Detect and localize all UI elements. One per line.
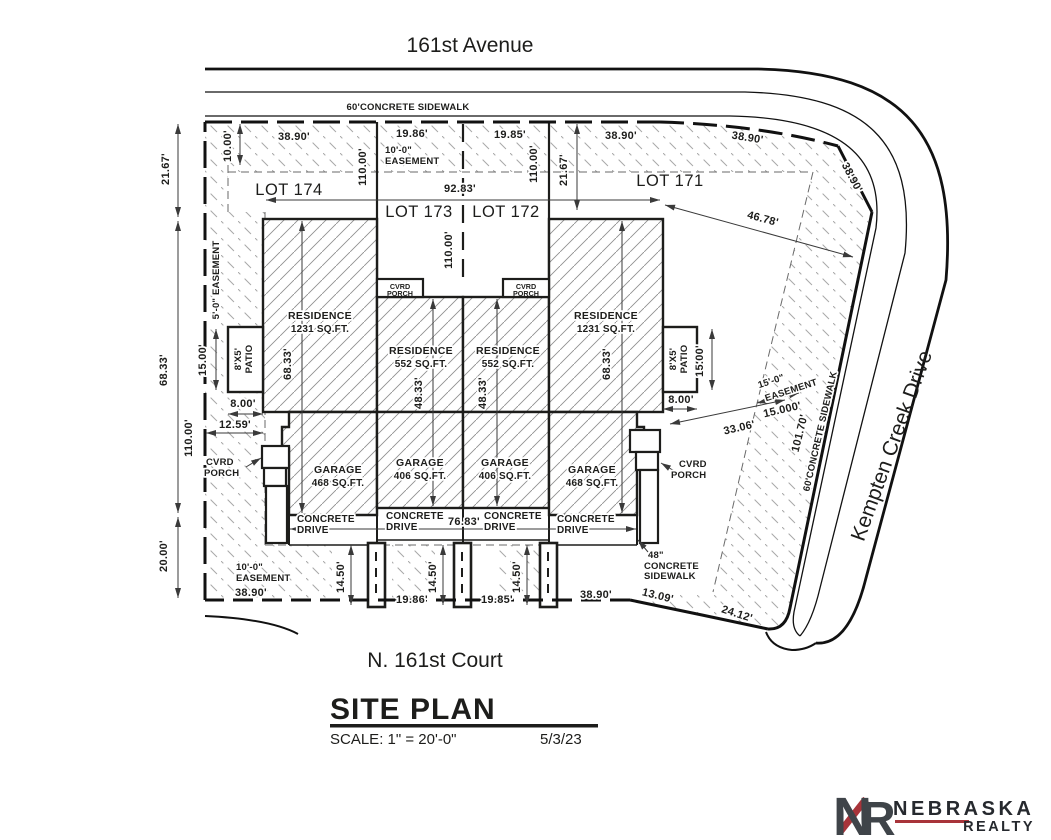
drive-172-label-2: DRIVE — [484, 522, 516, 533]
curb-bottom-right — [766, 632, 816, 650]
residence-171-sqft: 1231 SQ.FT. — [577, 324, 635, 335]
dim-14-50-b: 14.50' — [427, 561, 439, 593]
garage-173-label: GARAGE — [396, 457, 444, 469]
drive-174-label-2: DRIVE — [297, 525, 329, 536]
residence-173-label: RESIDENCE — [389, 345, 453, 357]
easement-bottom-label-2: EASEMENT — [236, 573, 290, 584]
residence-171-label: RESIDENCE — [574, 310, 638, 322]
porch-171-rear-label-1: CVRD — [679, 459, 707, 470]
patio-174-size-label: 8'X5' — [233, 348, 244, 370]
dim-38-90-bottom-right: 38.90' — [580, 589, 612, 601]
drive-172-label-1: CONCRETE — [484, 511, 542, 522]
dim-12-59: 12.59' — [219, 419, 251, 431]
dim-68-33-left: 68.33' — [158, 354, 170, 386]
curb-bottom-left — [205, 616, 298, 634]
dim-110-00-center: 110.00' — [443, 231, 455, 269]
porch-173-label-2: PORCH — [387, 289, 413, 298]
easement-left-label: 5'-0" EASEMENT — [211, 241, 222, 320]
dim-19-86-bottom: 19.86' — [396, 594, 428, 606]
sidewalk-label-top: 60'CONCRETE SIDEWALK — [347, 102, 470, 113]
porch-174-rear-label-2: PORCH — [204, 468, 239, 479]
logo-rule — [895, 820, 969, 823]
dim-38-90-top-right: 38.90' — [605, 130, 637, 142]
street-label-n-161st-court: N. 161st Court — [367, 649, 503, 672]
logo-tagline: REALTY — [963, 819, 1035, 835]
dim-110-00-left: 110.00' — [183, 419, 195, 457]
garage-173-sqft: 406 SQ.FT. — [394, 471, 447, 482]
dim-8-00-left: 8.00' — [230, 398, 256, 410]
residence-172-label: RESIDENCE — [476, 345, 540, 357]
patio-171-size-label: 8'X5' — [668, 348, 679, 370]
logo-name: NEBRASKA — [893, 798, 1034, 820]
garage-171-sqft: 468 SQ.FT. — [566, 478, 619, 489]
lot-173-label: LOT 173 — [385, 203, 452, 221]
logo-monogram-r: R — [861, 793, 896, 840]
dim-14-50-a: 14.50' — [335, 561, 347, 593]
residence-174-label: RESIDENCE — [288, 310, 352, 322]
dim-19-85-top: 19.85' — [494, 129, 526, 141]
easement-top-label-2: EASEMENT — [385, 156, 439, 167]
drawing-title: SITE PLAN — [330, 693, 496, 726]
title-underline — [330, 724, 598, 728]
drive-171-label-1: CONCRETE — [557, 514, 615, 525]
dim-15-00-right: 15.00' — [694, 345, 706, 377]
garage-172-label: GARAGE — [481, 457, 529, 469]
drive-171-label-2: DRIVE — [557, 525, 589, 536]
dim-8-00-right: 8.00' — [668, 394, 694, 406]
drawing-date: 5/3/23 — [540, 731, 582, 748]
patio-171-label: PATIO — [679, 345, 690, 374]
easement-bottom-label-1: 10'-0" — [236, 562, 263, 573]
easement-top-label-1: 10'-0" — [385, 145, 412, 156]
dim-14-50-c: 14.50' — [511, 561, 523, 593]
dim-110-00-lotline-1: 110.00' — [357, 148, 369, 186]
dim-68-33-res174: 68.33' — [282, 348, 294, 380]
dim-38-90-top-left: 38.90' — [278, 131, 310, 143]
lot-171-label: LOT 171 — [636, 172, 703, 190]
garage-171-label: GARAGE — [568, 464, 616, 476]
drive-174-label-1: CONCRETE — [297, 514, 355, 525]
street-label-kempten-creek-drive: Kempten Creek Drive — [847, 348, 937, 545]
street-label-161st-avenue: 161st Avenue — [407, 34, 534, 57]
drive-173-label-2: DRIVE — [386, 522, 418, 533]
dim-76-83: 76.83' — [448, 516, 480, 528]
sidewalk48-label-1: 48" — [648, 550, 664, 561]
dim-19-86-top: 19.86' — [396, 128, 428, 140]
garage-174-label: GARAGE — [314, 464, 362, 476]
garage-174-sqft: 468 SQ.FT. — [312, 478, 365, 489]
porch-172-label-2: PORCH — [513, 289, 539, 298]
drawing-scale: SCALE: 1" = 20'-0" — [330, 731, 457, 748]
site-plan-drawing: 161st Avenue N. 161st Court Kempten Cree… — [0, 0, 1051, 840]
porch-171-rear-label-2: PORCH — [671, 470, 706, 481]
dim-20-00: 20.00' — [158, 540, 170, 572]
garage-172-sqft: 406 SQ.FT. — [479, 471, 532, 482]
dim-48-33-res172: 48.33' — [477, 377, 489, 409]
sidewalk48-label-3: SIDEWALK — [644, 571, 696, 582]
dim-48-33-res173: 48.33' — [413, 377, 425, 409]
dim-19-85-bottom: 19.85' — [481, 594, 513, 606]
dim-68-33-res171: 68.33' — [601, 348, 613, 380]
residence-173-sqft: 552 SQ.FT. — [395, 359, 448, 370]
dim-110-00-lotline-2: 110.00' — [528, 145, 540, 183]
lot-174-label: LOT 174 — [255, 181, 322, 199]
dim-21-67-left: 21.67' — [160, 153, 172, 185]
lot-172-label: LOT 172 — [472, 203, 539, 221]
residence-172-sqft: 552 SQ.FT. — [482, 359, 535, 370]
dim-21-67-right: 21.67' — [558, 154, 570, 186]
dim-92-83: 92.83' — [444, 183, 476, 195]
covered-porch-lot174-rear — [262, 446, 289, 543]
dim-15-00-left: 15.00' — [197, 344, 209, 376]
dim-10-00-top: 10.00' — [222, 130, 234, 162]
residence-174-sqft: 1231 SQ.FT. — [291, 324, 349, 335]
nebraska-realty-logo: N R NEBRASKA REALTY — [833, 787, 1035, 840]
porch-174-rear-label-1: CVRD — [206, 457, 234, 468]
drive-173-label-1: CONCRETE — [386, 511, 444, 522]
dim-38-90-bottom-left: 38.90' — [235, 587, 267, 599]
site-plan-page: 161st Avenue N. 161st Court Kempten Cree… — [0, 0, 1051, 840]
patio-174-label: PATIO — [244, 345, 255, 374]
title-block: SITE PLAN SCALE: 1" = 20'-0" 5/3/23 — [330, 693, 598, 748]
